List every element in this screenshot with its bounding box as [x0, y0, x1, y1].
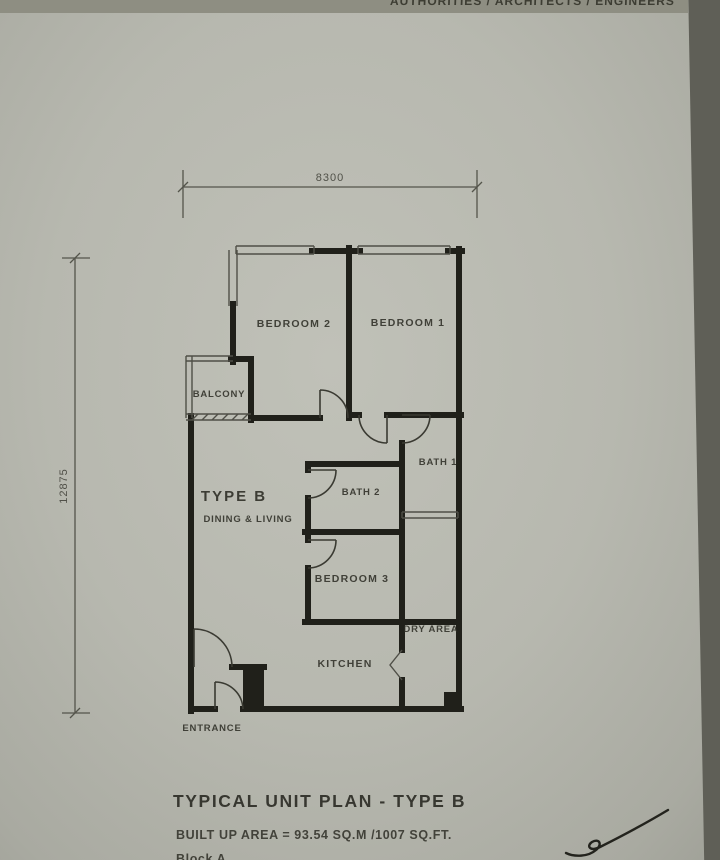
label-bedroom-3: BEDROOM 3	[315, 573, 389, 585]
entrance-pillar	[243, 667, 264, 709]
label-bedroom-1: BEDROOM 1	[371, 317, 445, 329]
label-dining-living: DINING & LIVING	[203, 514, 292, 525]
label-entrance: ENTRANCE	[182, 723, 241, 734]
plan-title: TYPICAL UNIT PLAN - TYPE B	[173, 791, 466, 811]
label-type-b: TYPE B	[201, 488, 267, 505]
built-up-area: BUILT UP AREA = 93.54 SQ.M /1007 SQ.FT.	[176, 828, 452, 842]
door-arc-bedroom1	[359, 415, 387, 443]
dimension-left-value: 12875	[58, 468, 70, 504]
clipped-header-text: AUTHORITIES / ARCHITECTS / ENGINEERS	[390, 0, 675, 8]
dimension-top: 8300	[178, 170, 482, 218]
label-balcony: BALCONY	[193, 389, 246, 400]
plan-footer: TYPICAL UNIT PLAN - TYPE B BUILT UP AREA…	[173, 791, 668, 860]
clipped-header-bar: AUTHORITIES / ARCHITECTS / ENGINEERS	[0, 0, 688, 13]
block-line: Block A	[176, 852, 226, 860]
label-bath-2: BATH 2	[342, 487, 380, 498]
door-arc-bath1	[402, 415, 430, 443]
door-arc-entrance	[215, 682, 243, 709]
paper-sheet: 8300 12875	[0, 0, 720, 860]
door-arc-bath2	[308, 470, 336, 498]
door-arc-bedroom3	[308, 540, 336, 568]
label-bath-1: BATH 1	[419, 457, 457, 468]
door-arc-bedroom2	[320, 390, 348, 418]
dimension-left: 12875	[58, 253, 90, 718]
label-dry-area: DRY AREA	[403, 624, 458, 635]
room-labels: BEDROOM 2 BEDROOM 1 BALCONY TYPE B DININ…	[182, 317, 458, 734]
doors	[194, 390, 430, 709]
floor-plan-drawing: 8300 12875	[0, 0, 720, 860]
dry-area-column	[444, 692, 458, 706]
label-bedroom-2: BEDROOM 2	[257, 318, 331, 330]
signature-mark	[566, 810, 668, 856]
label-kitchen: KITCHEN	[317, 658, 372, 670]
door-arc-entry-inner	[194, 629, 232, 667]
dimension-top-value: 8300	[316, 172, 344, 184]
